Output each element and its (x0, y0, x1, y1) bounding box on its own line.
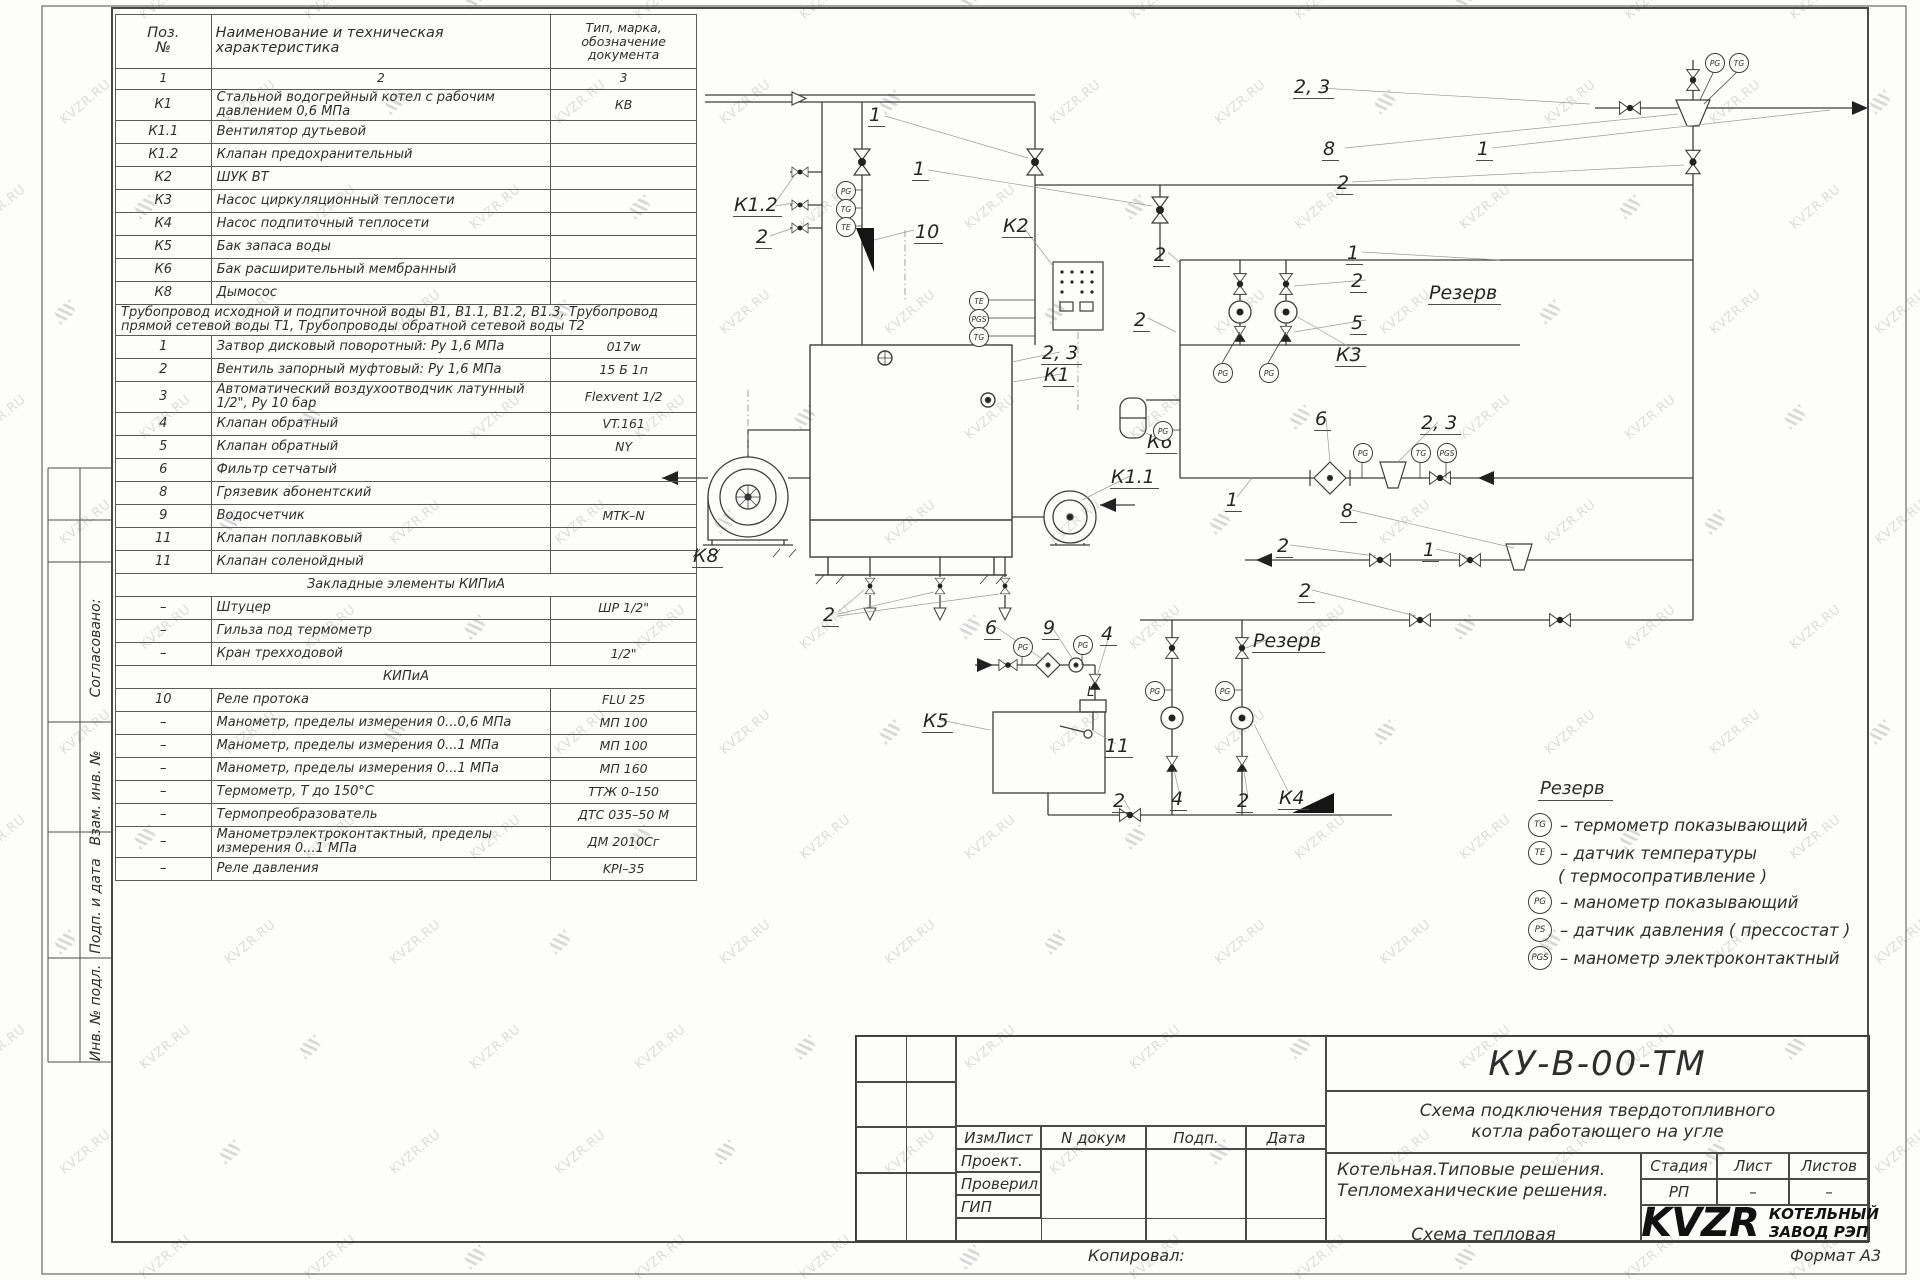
name-cell: Клапан обратный (211, 412, 551, 435)
name-cell: Фильтр сетчатый (211, 458, 551, 481)
type-cell: МП 100 (551, 734, 697, 757)
table-row: –Манометр, пределы измерения 0...1 МПаМП… (116, 734, 697, 757)
position-cell: К6 (116, 258, 212, 281)
table-row: –Термометр, Т до 150°СТТЖ 0–150 (116, 780, 697, 803)
diagram-label: 2 (1336, 174, 1353, 195)
sheets-label: Листов (1789, 1153, 1869, 1179)
doc-title-line2: котла работающего на угле (1471, 1122, 1723, 1142)
position-cell: 11 (116, 527, 212, 550)
table-row: 1Затвор дисковый поворотный: Ру 1,6 МПа0… (116, 335, 697, 358)
position-cell: – (116, 857, 212, 880)
parts-table-header-pos: Поз.№ (116, 15, 212, 69)
table-row: –Манометр, пределы измерения 0...1 МПаМП… (116, 757, 697, 780)
instrument-bubble-pg: PG (1213, 363, 1233, 383)
table-row: Закладные элементы КИПиА (116, 573, 697, 596)
table-row: 8Грязевик абонентский (116, 481, 697, 504)
position-cell: 6 (116, 458, 212, 481)
diagram-label: К8 (692, 547, 723, 568)
name-cell: Бак запаса воды (211, 235, 551, 258)
col-n-dokum: N докум (1041, 1126, 1146, 1149)
instrument-bubble-pg: PG (1353, 443, 1373, 463)
diagram-label: К1.1 (1110, 468, 1159, 489)
table-row: К1.2Клапан предохранительный (116, 143, 697, 166)
col-podp: Подп. (1146, 1126, 1246, 1149)
table-row: К5Бак запаса воды (116, 235, 697, 258)
legend-text: – датчик давления ( прессостат ) (1560, 921, 1850, 940)
diagram-label: 1 (868, 106, 885, 127)
pipeline-note: Трубопровод исходной и подпиточной воды … (116, 304, 697, 335)
legend-title: Резерв (1538, 778, 1613, 801)
type-cell: 15 Б 1п (551, 358, 697, 381)
diagram-label: 1 (1346, 244, 1363, 265)
table-row: Трубопровод исходной и подпиточной воды … (116, 304, 697, 335)
position-cell: – (116, 596, 212, 619)
instrument-bubble-te: TE (836, 217, 856, 237)
legend-text: ( термосопративление ) (1558, 867, 1767, 886)
table-row: 10Реле протокаFLU 25 (116, 688, 697, 711)
name-cell: Вентилятор дутьевой (211, 120, 551, 143)
diagram-label: 2 (1350, 272, 1367, 293)
table-row: К1.1Вентилятор дутьевой (116, 120, 697, 143)
position-cell: 11 (116, 550, 212, 573)
section-header: Закладные элементы КИПиА (116, 573, 697, 596)
logo-cell: KVZR КОТЕЛЬНЫЙ ЗАВОД РЭП (1641, 1205, 1869, 1241)
table-row: –Манометрэлектроконтактный, пределы изме… (116, 826, 697, 857)
diagram-label: К3 (1335, 346, 1366, 367)
doc-title: Схема подключения твердотопливного котла… (1326, 1091, 1869, 1153)
diagram-label: К5 (922, 712, 953, 733)
table-row: –Кран трехходовой1/2" (116, 642, 697, 665)
type-cell (551, 481, 697, 504)
type-cell (551, 166, 697, 189)
company-line1: КОТЕЛЬНЫЙ (1769, 1205, 1879, 1223)
copied-label: Копировал: (1088, 1246, 1185, 1265)
name-cell: Реле давления (211, 857, 551, 880)
side-stamp-label: Взам. инв. № (88, 738, 104, 858)
type-cell (551, 120, 697, 143)
grid-line (856, 1081, 956, 1083)
type-cell: VT.161 (551, 412, 697, 435)
org-line2: Тепломеханические решения. (1337, 1181, 1630, 1202)
type-cell (551, 527, 697, 550)
name-cell: Манометрэлектроконтактный, пределы измер… (211, 826, 551, 857)
position-cell: – (116, 711, 212, 734)
diagram-label: 10 (914, 223, 943, 244)
instrument-bubble-te: TE (969, 291, 989, 311)
instrument-bubble-tg: TG (969, 327, 989, 347)
type-cell (551, 458, 697, 481)
type-cell: КВ (551, 89, 697, 120)
position-cell: – (116, 619, 212, 642)
legend-item: TG– термометр показывающий (1528, 813, 1898, 837)
position-cell: – (116, 803, 212, 826)
name-cell: Манометр, пределы измерения 0...1 МПа (211, 734, 551, 757)
instrument-bubble-tg: TG (836, 199, 856, 219)
position-cell: – (116, 757, 212, 780)
diagram-label: 2, 3 (1420, 414, 1461, 435)
legend-text: – термометр показывающий (1560, 816, 1808, 835)
diagram-label: 9 (1042, 619, 1059, 640)
diagram-label: 6 (1314, 410, 1331, 431)
table-row: К6Бак расширительный мембранный (116, 258, 697, 281)
col-izm-list: ИзмЛист (956, 1126, 1041, 1149)
type-cell: 017w (551, 335, 697, 358)
stage-label: Стадия (1641, 1153, 1717, 1179)
type-cell (551, 189, 697, 212)
kvzr-logo-text: KVZR (1641, 1200, 1759, 1246)
format-label: Формат А3 (1790, 1246, 1881, 1265)
position-cell: – (116, 780, 212, 803)
instrument-bubble-tg: TG (1729, 53, 1749, 73)
table-row: 2Вентиль запорный муфтовый: Ру 1,6 МПа15… (116, 358, 697, 381)
row-gip: ГИП (956, 1195, 1041, 1218)
column-number: 1 (116, 68, 212, 89)
grid-line (856, 1126, 956, 1128)
row-proveril: Проверил (956, 1172, 1041, 1195)
type-cell (551, 143, 697, 166)
type-cell: MTK–N (551, 504, 697, 527)
position-cell: 3 (116, 381, 212, 412)
position-cell: К1.1 (116, 120, 212, 143)
diagram-label: 2 (1298, 582, 1315, 603)
position-cell: К3 (116, 189, 212, 212)
type-cell (551, 550, 697, 573)
table-row: –Гильза под термометр (116, 619, 697, 642)
legend-text: – датчик температуры (1560, 844, 1757, 863)
name-cell: Водосчетчик (211, 504, 551, 527)
company-line2: ЗАВОД РЭП (1769, 1223, 1869, 1241)
name-cell: Термопреобразователь (211, 803, 551, 826)
table-row: 3Автоматический воздухоотводчик латунный… (116, 381, 697, 412)
type-cell: ДТС 035–50 М (551, 803, 697, 826)
position-cell: – (116, 734, 212, 757)
type-cell (551, 212, 697, 235)
position-cell: 4 (116, 412, 212, 435)
table-row: К2ШУК ВТ (116, 166, 697, 189)
legend-symbol-icon: TG (1528, 813, 1552, 837)
name-cell: Клапан поплавковый (211, 527, 551, 550)
diagram-label: 2 (1153, 246, 1170, 267)
legend-item: TE– датчик температуры (1528, 841, 1898, 865)
position-cell: 9 (116, 504, 212, 527)
legend-symbol-icon: PS (1528, 918, 1552, 942)
diagram-label: 1 (1225, 491, 1242, 512)
diagram-label: 2, 3 (1293, 78, 1334, 99)
org-line1: Котельная.Типовые решения. (1337, 1160, 1630, 1181)
col-data: Дата (1246, 1126, 1326, 1149)
table-row: К1Стальной водогрейный котел с рабочим д… (116, 89, 697, 120)
position-cell: 10 (116, 688, 212, 711)
name-cell: Клапан обратный (211, 435, 551, 458)
diagram-label: 8 (1340, 502, 1357, 523)
name-cell: Затвор дисковый поворотный: Ру 1,6 МПа (211, 335, 551, 358)
diagram-label: К2 (1002, 217, 1033, 238)
diagram-label: К1.2 (733, 196, 782, 217)
type-cell: МП 100 (551, 711, 697, 734)
instrument-bubble-pg: PG (1073, 635, 1093, 655)
diagram-label: К4 (1278, 789, 1309, 810)
table-row: –Реле давленияKPI–35 (116, 857, 697, 880)
table-row: 6Фильтр сетчатый (116, 458, 697, 481)
position-cell: – (116, 642, 212, 665)
company-name: КОТЕЛЬНЫЙ ЗАВОД РЭП (1769, 1205, 1879, 1241)
instrument-bubble-tg: TG (1411, 443, 1431, 463)
instrument-bubble-pg: PG (1013, 637, 1033, 657)
type-cell: МП 160 (551, 757, 697, 780)
position-cell: К1.2 (116, 143, 212, 166)
diagram-label: 5 (1350, 314, 1367, 335)
diagram-label: 2 (822, 606, 839, 627)
legend-text: – манометр показывающий (1560, 893, 1798, 912)
diagram-label: 1 (1476, 140, 1493, 161)
table-row: 11Клапан соленойдный (116, 550, 697, 573)
name-cell: Клапан соленойдный (211, 550, 551, 573)
side-stamp-label: Согласовано: (88, 588, 104, 708)
side-stamp-label: Инв. № подл. (88, 953, 104, 1073)
name-cell: Бак расширительный мембранный (211, 258, 551, 281)
table-row: –ШтуцерШР 1/2" (116, 596, 697, 619)
name-cell: Стальной водогрейный котел с рабочим дав… (211, 89, 551, 120)
doc-number: КУ-В-00-ТМ (1326, 1036, 1869, 1091)
type-cell (551, 258, 697, 281)
type-cell: ТТЖ 0–150 (551, 780, 697, 803)
name-cell: Манометр, пределы измерения 0...0,6 МПа (211, 711, 551, 734)
diagram-label: 2 (1276, 537, 1293, 558)
legend-item: PS– датчик давления ( прессостат ) (1528, 918, 1898, 942)
position-cell: 8 (116, 481, 212, 504)
legend: Резерв TG– термометр показывающийTE– дат… (1528, 778, 1898, 974)
table-row: К8Дымосос (116, 281, 697, 304)
sheet-label: Лист (1717, 1153, 1789, 1179)
legend-symbol-icon: PGS (1528, 946, 1552, 970)
parts-table: Поз.№ Наименование и техническаяхарактер… (115, 14, 697, 881)
diagram-label: 2 (1236, 792, 1253, 813)
instrument-bubble-pg: PG (1259, 363, 1279, 383)
position-cell: 5 (116, 435, 212, 458)
diagram-label: Резерв (1428, 284, 1501, 305)
name-cell: Термометр, Т до 150°С (211, 780, 551, 803)
parts-table-header-type: Тип, марка,обозначениедокумента (551, 15, 697, 69)
instrument-bubble-pg: PG (1705, 53, 1725, 73)
section-header: КИПиА (116, 665, 697, 688)
scheme-name: Схема тепловая (1337, 1225, 1630, 1246)
table-row: 11Клапан поплавковый (116, 527, 697, 550)
side-stamp-label: Подп. и дата (88, 846, 104, 966)
type-cell: ШР 1/2" (551, 596, 697, 619)
type-cell: Flexvent 1/2 (551, 381, 697, 412)
legend-text: – манометр электроконтактный (1560, 949, 1839, 968)
diagram-label: Резерв (1252, 632, 1325, 653)
name-cell: Гильза под термометр (211, 619, 551, 642)
name-cell: Манометр, пределы измерения 0...1 МПа (211, 757, 551, 780)
position-cell: 1 (116, 335, 212, 358)
legend-item: PG– манометр показывающий (1528, 890, 1898, 914)
instrument-bubble-pg: PG (1153, 421, 1173, 441)
table-row: –ТермопреобразовательДТС 035–50 М (116, 803, 697, 826)
diagram-label: 2, 3 (1041, 344, 1082, 365)
position-cell: К1 (116, 89, 212, 120)
name-cell: Дымосос (211, 281, 551, 304)
diagram-label: 8 (1322, 140, 1339, 161)
name-cell: Реле протока (211, 688, 551, 711)
position-cell: К8 (116, 281, 212, 304)
diagram-label: 11 (1104, 737, 1133, 758)
table-row: 5Клапан обратныйNY (116, 435, 697, 458)
position-cell: – (116, 826, 212, 857)
drawing-sheet: { "watermark": {"text": "KVZR.RU"}, "par… (0, 0, 1920, 1280)
table-row: 4Клапан обратныйVT.161 (116, 412, 697, 435)
table-row: –Манометр, пределы измерения 0...0,6 МПа… (116, 711, 697, 734)
table-row: К4Насос подпиточный теплосети (116, 212, 697, 235)
name-cell: Насос подпиточный теплосети (211, 212, 551, 235)
name-cell: Клапан предохранительный (211, 143, 551, 166)
diagram-label: 2 (1133, 311, 1150, 332)
position-cell: 2 (116, 358, 212, 381)
column-number: 2 (211, 68, 551, 89)
grid-cell (956, 1218, 1326, 1241)
type-cell: NY (551, 435, 697, 458)
type-cell: FLU 25 (551, 688, 697, 711)
instrument-bubble-pgs: PGS (969, 309, 989, 329)
legend-symbol-icon: PG (1528, 890, 1552, 914)
column-number: 3 (551, 68, 697, 89)
name-cell: ШУК ВТ (211, 166, 551, 189)
name-cell: Кран трехходовой (211, 642, 551, 665)
position-cell: К4 (116, 212, 212, 235)
table-row: 9ВодосчетчикMTK–N (116, 504, 697, 527)
diagram-label: 1 (1422, 541, 1439, 562)
diagram-label: 2 (1112, 792, 1129, 813)
type-cell (551, 619, 697, 642)
grid-line (856, 1172, 956, 1174)
sheets-value: – (1789, 1179, 1869, 1205)
doc-title-line1: Схема подключения твердотопливного (1420, 1101, 1776, 1121)
instrument-bubble-pgs: PGS (1437, 443, 1457, 463)
legend-item: PGS– манометр электроконтактный (1528, 946, 1898, 970)
title-block-left-grid-col (906, 1036, 956, 1241)
row-proekt: Проект. (956, 1149, 1041, 1172)
diagram-label: 6 (984, 619, 1001, 640)
diagram-label: 2 (755, 228, 772, 249)
type-cell (551, 235, 697, 258)
type-cell: KPI–35 (551, 857, 697, 880)
org-cell: Котельная.Типовые решения. Тепломеханиче… (1326, 1153, 1641, 1241)
instrument-bubble-pg: PG (1145, 681, 1165, 701)
legend-symbol-icon: TE (1528, 841, 1552, 865)
diagram-label: К1 (1043, 366, 1074, 387)
name-cell: Грязевик абонентский (211, 481, 551, 504)
diagram-label: 4 (1170, 790, 1187, 811)
legend-item: ( термосопративление ) (1528, 867, 1898, 886)
instrument-bubble-pg: PG (1215, 681, 1235, 701)
grid-cell (956, 1036, 1326, 1126)
diagram-label: 4 (1100, 625, 1117, 646)
table-row: КИПиА (116, 665, 697, 688)
position-cell: К2 (116, 166, 212, 189)
parts-table-header-name: Наименование и техническаяхарактеристика (211, 15, 551, 69)
column-number-row: 123 (116, 68, 697, 89)
name-cell: Вентиль запорный муфтовый: Ру 1,6 МПа (211, 358, 551, 381)
name-cell: Штуцер (211, 596, 551, 619)
diagram-label: 1 (912, 160, 929, 181)
name-cell: Автоматический воздухоотводчик латунный … (211, 381, 551, 412)
diagram-label: L (1086, 686, 1098, 700)
type-cell: 1/2" (551, 642, 697, 665)
instrument-bubble-pg: PG (836, 181, 856, 201)
table-row: К3Насос циркуляционный теплосети (116, 189, 697, 212)
name-cell: Насос циркуляционный теплосети (211, 189, 551, 212)
title-block: ИзмЛист N докум Подп. Дата Проект. Прове… (855, 1035, 1870, 1242)
position-cell: К5 (116, 235, 212, 258)
type-cell: ДМ 2010Сг (551, 826, 697, 857)
type-cell (551, 281, 697, 304)
